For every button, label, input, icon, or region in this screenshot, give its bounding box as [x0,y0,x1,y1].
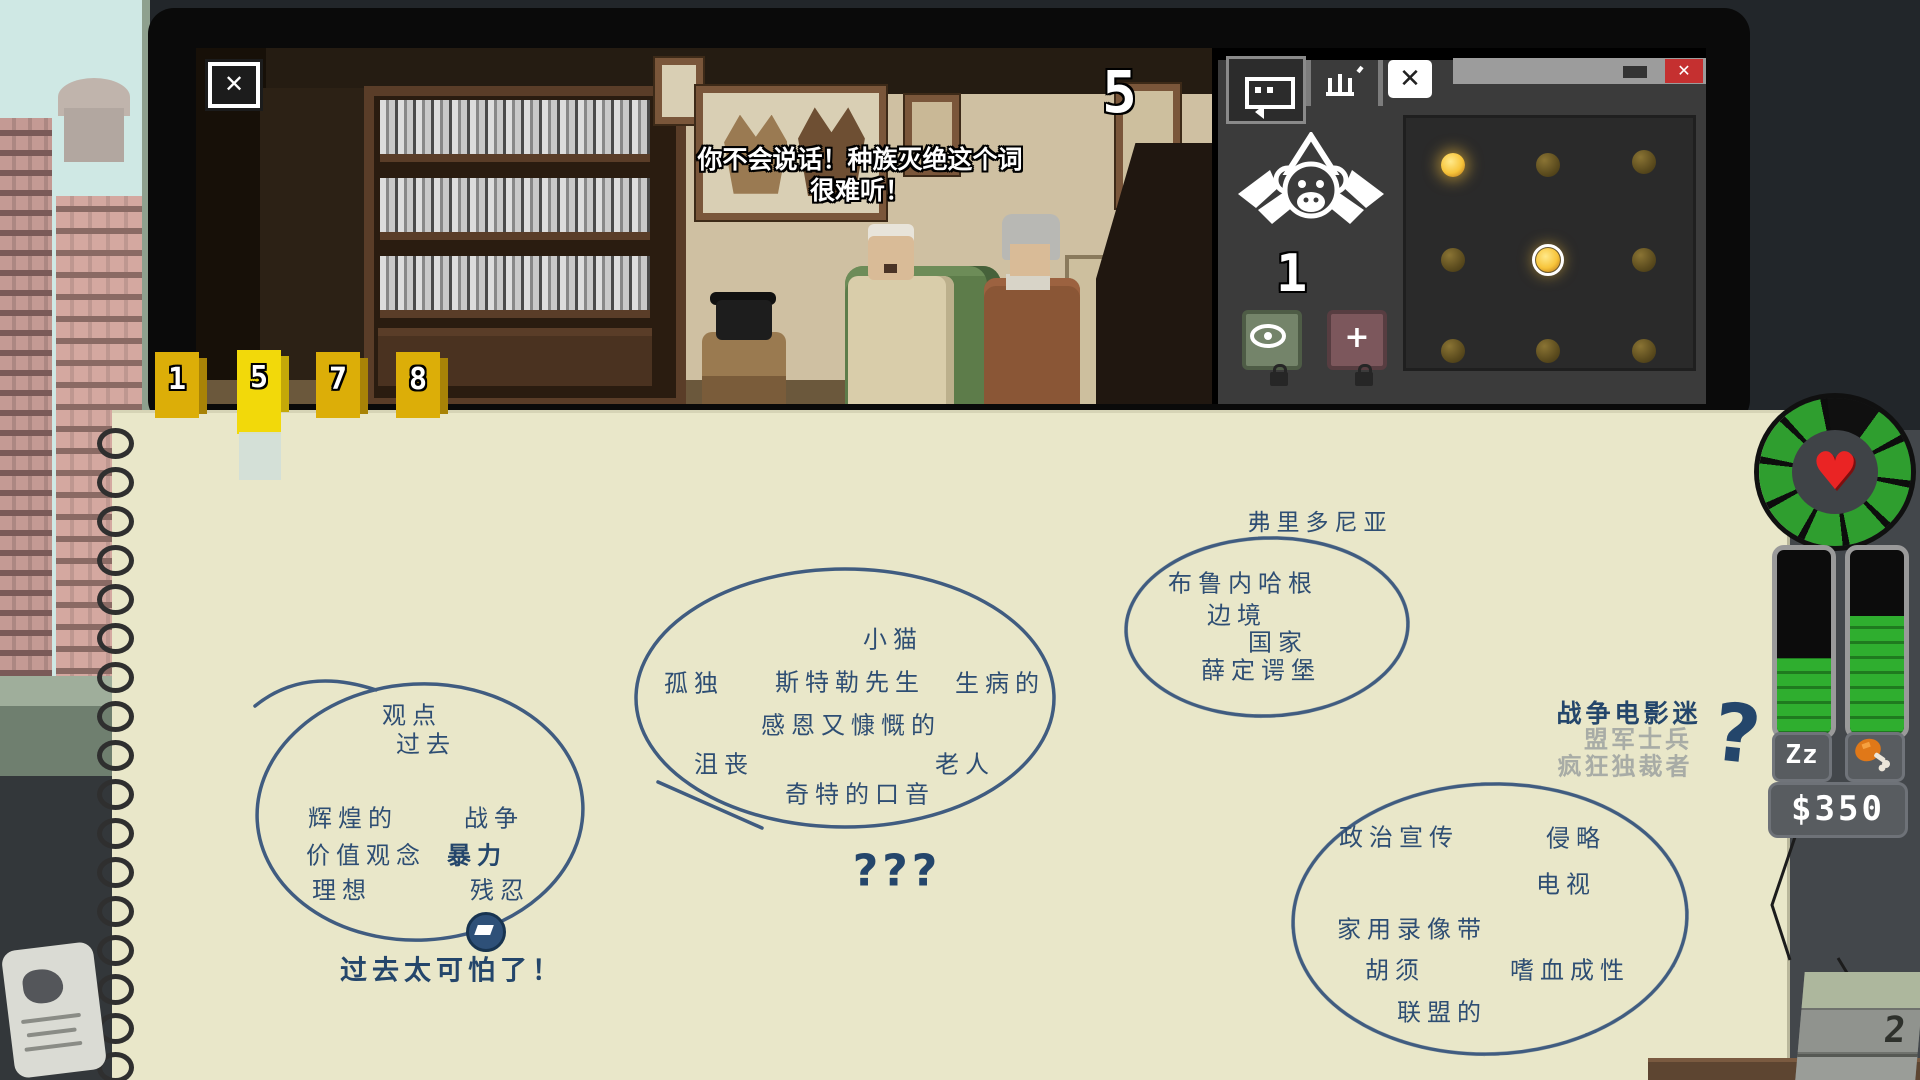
panel-titlebar: ✕ [1453,58,1706,84]
cage-slot[interactable] [1441,153,1465,177]
desk-sketch [1,941,108,1079]
close-button[interactable]: ✕ [1665,59,1703,83]
keyword[interactable]: 战争 [464,799,524,834]
bookmark-tab[interactable]: 5 [237,350,281,434]
calendar-top [1802,972,1920,1008]
spiral-ring [97,506,134,537]
spiral-ring [97,935,134,966]
spiral-ring [97,896,134,927]
close-feed-button[interactable]: ✕ [208,62,260,108]
sleep-button[interactable]: Zz [1772,732,1832,782]
monkey-club-panel: ✕ ✕ [1218,48,1706,404]
spiral-ring [97,779,134,810]
sleep-meter [1772,545,1836,739]
cassette-icon [1245,77,1295,109]
bookmark-tab[interactable]: 1 [155,352,199,418]
drumstick-icon [1848,735,1896,773]
eat-button[interactable] [1845,732,1905,782]
keyword[interactable]: 联盟的 [1397,993,1487,1028]
health-ring: ♥ [1759,398,1911,546]
keyword[interactable]: 政治宣传 [1339,818,1459,853]
video-feed-scene: ✕ 5 你不会说话！种族灭绝这个词 很难听！ [196,48,1212,404]
lock-icon [1270,372,1288,386]
keyword[interactable]: 感恩又慷慨的 [761,706,941,741]
guess-rejected[interactable]: 疯狂独裁者 [1558,747,1693,782]
keyword[interactable]: 老人 [935,745,995,780]
keyword-highlighted[interactable]: 暴力 [447,836,507,871]
tab-cage-cam[interactable] [1226,56,1306,124]
spiral-ring [97,818,134,849]
dialogue-text: 你不会说话！种族灭绝这个词 很难听！ [630,144,1090,206]
cage-slot[interactable] [1536,339,1560,363]
tab-separator [1306,60,1311,106]
old-woman-face [1010,244,1050,276]
minimize-button[interactable] [1623,66,1647,78]
keyword[interactable]: 薛定谔堡 [1201,651,1321,686]
cage-slot[interactable] [1536,248,1560,272]
bookmark-sticky [239,432,281,480]
cage-grid [1403,115,1696,371]
tab-separator [1378,60,1383,106]
monitor: ✕ 5 你不会说话！种族灭绝这个词 很难听！ ✕ [148,8,1750,426]
calendar-day: 2 [1798,1010,1920,1052]
old-man-mouth [884,264,897,273]
spiral-ring [97,740,134,771]
money-display: $350 [1768,782,1908,838]
spiral-ring [97,428,134,459]
keyword[interactable]: 理想 [312,871,372,906]
guess-question-mark: ? [1709,685,1765,782]
keyword[interactable]: 布鲁内哈根 [1168,564,1318,599]
telephone [716,300,772,340]
monkey-count: 1 [1276,244,1307,304]
keyword[interactable]: 小猫 [863,620,923,655]
keyword[interactable]: 电视 [1536,865,1596,900]
cage-slot[interactable] [1632,248,1656,272]
keyword[interactable]: 嗜血成性 [1510,951,1630,986]
old-man [848,276,954,404]
keyword[interactable]: 胡须 [1365,951,1425,986]
spiral-ring [97,545,134,576]
keyword[interactable]: 孤独 [664,664,724,699]
desk-calendar: 2 [1795,972,1920,1080]
monkey-club-icon [1236,132,1386,242]
erase-cluster-button[interactable] [466,912,506,952]
bookmark-tab[interactable]: 7 [316,352,360,418]
screen: ✕ 5 你不会说话！种族灭绝这个词 很难听！ ✕ [196,48,1706,404]
doorway [260,88,372,380]
spiral-ring [97,662,134,693]
feed-counter: 5 [1102,58,1137,126]
keyword[interactable]: 家用录像带 [1337,910,1487,945]
wardrobe [1096,143,1212,404]
watch-button[interactable] [1242,310,1302,370]
cage-slot[interactable] [1536,153,1560,177]
hunger-meter [1845,545,1909,739]
cage-slot[interactable] [1441,248,1465,272]
calendar-bottom [1795,1054,1918,1080]
cluster-note: 过去太可怕了！ [340,949,564,988]
spiral-ring [97,467,134,498]
cage-slot[interactable] [1632,339,1656,363]
add-cage-button[interactable]: + [1327,310,1387,370]
dialogue-line-2: 很难听！ [630,175,1090,206]
bookmark-tab[interactable]: 8 [396,352,440,418]
side-table [702,332,786,404]
old-woman-collar [1006,274,1050,290]
dialogue-line-1: 你不会说话！种族灭绝这个词 [630,144,1090,175]
water-tower [58,78,130,170]
keyword[interactable]: 生病的 [955,664,1045,699]
keyword[interactable]: 残忍 [470,871,530,906]
spiral-ring [97,584,134,615]
keyword[interactable]: 奇特的口音 [785,775,935,810]
keyword[interactable]: 过去 [396,725,456,760]
keyword[interactable]: 斯特勒先生 [775,663,925,698]
cluster-unknown-mark: ??? [853,846,942,897]
old-woman [984,278,1080,404]
cage-slot[interactable] [1441,339,1465,363]
book-row [380,256,650,318]
spiral-ring [97,701,134,732]
spiral-ring [97,623,134,654]
tab-crown[interactable] [1316,62,1372,106]
keyword[interactable]: 价值观念 [306,836,426,871]
book-row [380,178,650,240]
spiral-ring [97,857,134,888]
keyword[interactable]: 沮丧 [694,745,754,780]
keyword[interactable]: 辉煌的 [308,799,398,834]
building [0,118,52,690]
lock-icon [1355,372,1373,386]
keyword[interactable]: 侵略 [1546,819,1606,854]
game-screenshot: ✕ 5 你不会说话！种族灭绝这个词 很难听！ ✕ [0,0,1920,1080]
spiral-ring [97,974,134,1005]
heart-icon: ♥ [1812,442,1859,502]
tab-block[interactable]: ✕ [1388,60,1432,98]
book-row [380,100,650,162]
cage-slot[interactable] [1632,150,1656,174]
keyword[interactable]: 弗里多尼亚 [1248,503,1393,537]
